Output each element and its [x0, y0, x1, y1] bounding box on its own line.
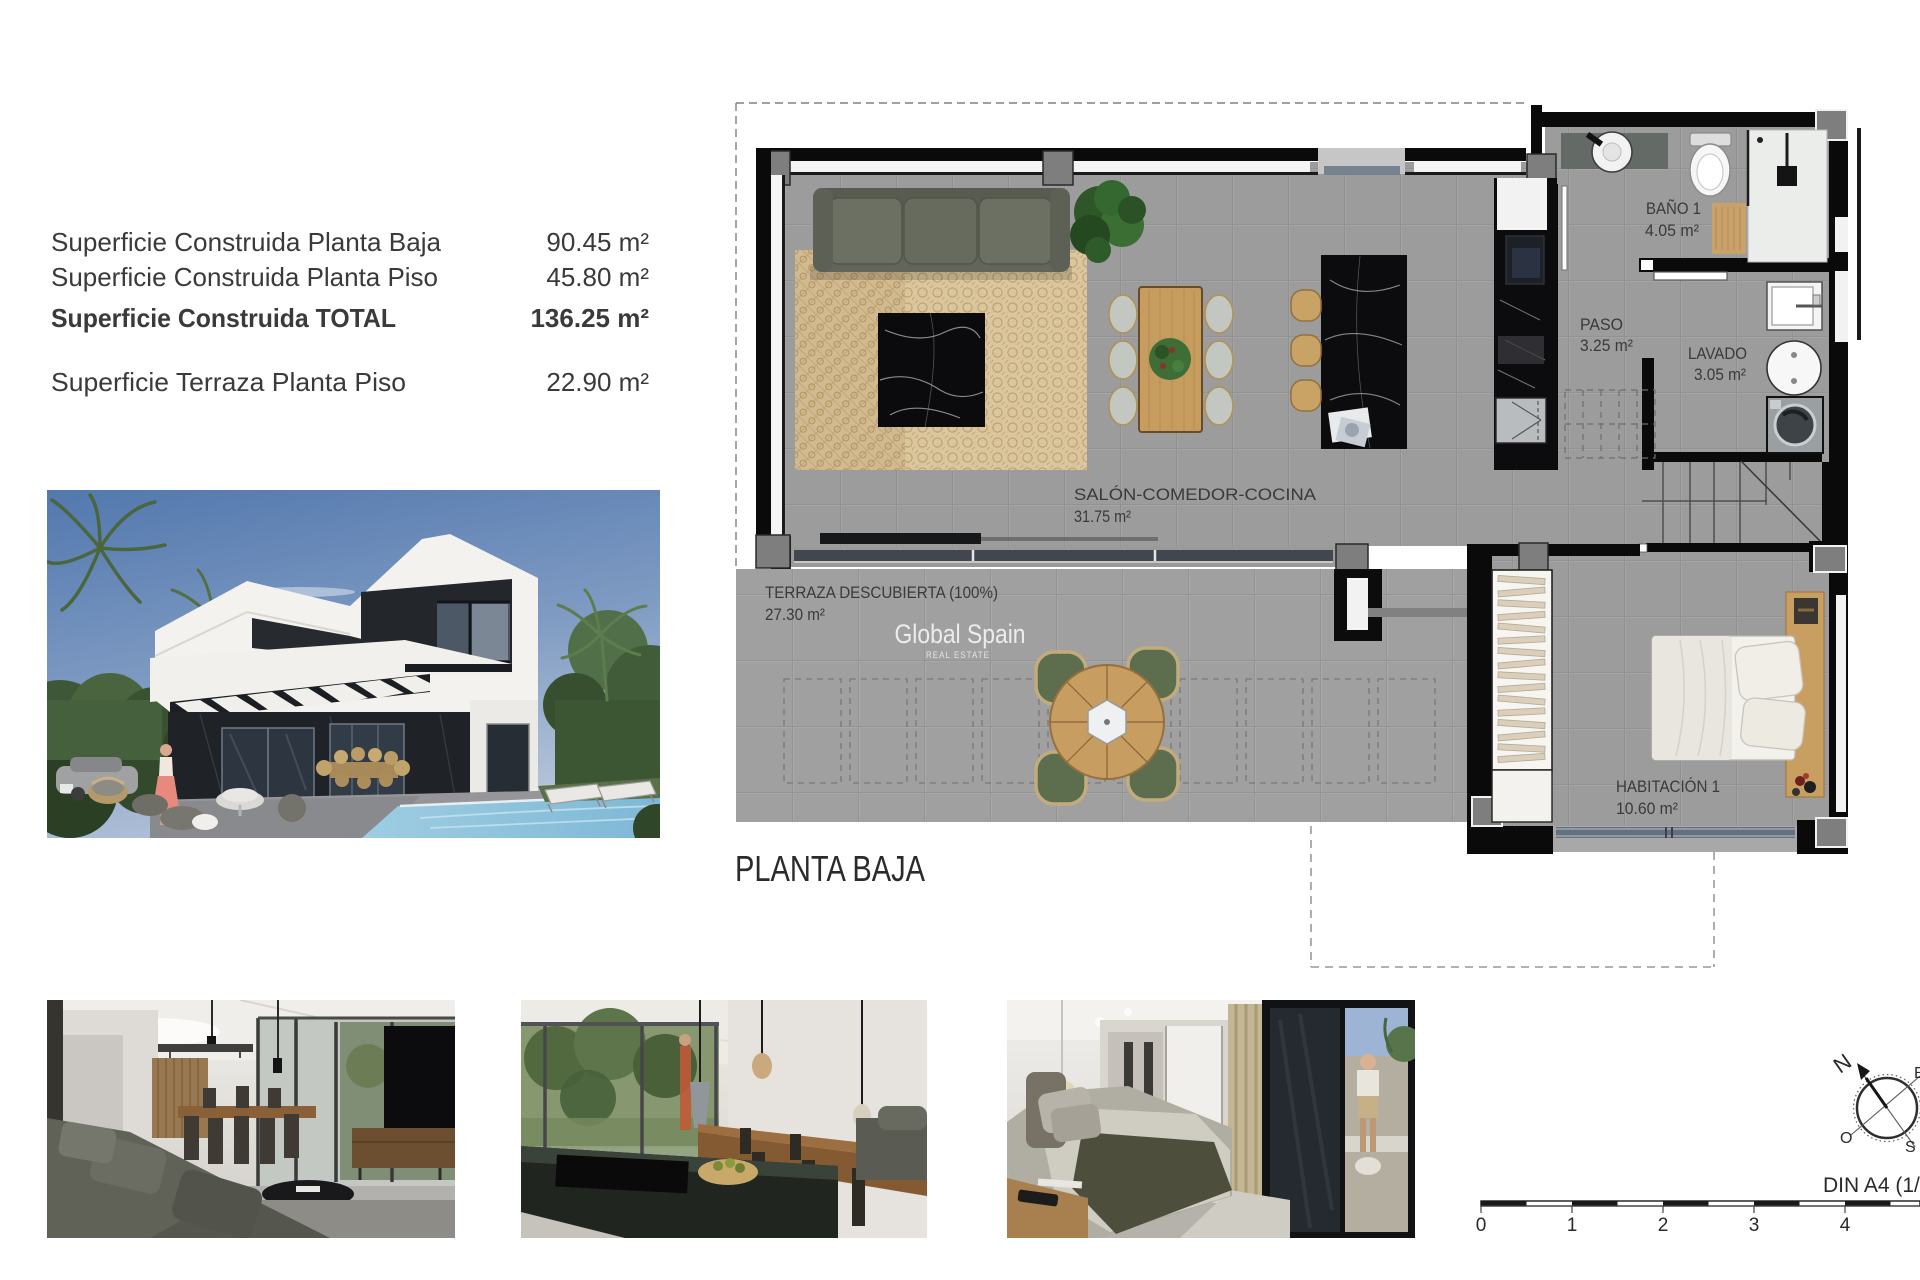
svg-text:22.90 m²: 22.90 m² — [546, 367, 649, 397]
svg-text:PASO: PASO — [1580, 316, 1623, 334]
svg-text:O: O — [1840, 1130, 1852, 1147]
svg-text:0: 0 — [1476, 1215, 1487, 1236]
svg-text:Global Spain: Global Spain — [895, 619, 1026, 649]
svg-text:Superficie Construida Planta P: Superficie Construida Planta Piso — [51, 262, 438, 292]
svg-text:136.25 m²: 136.25 m² — [530, 303, 649, 333]
svg-text:LAVADO: LAVADO — [1688, 345, 1747, 363]
svg-text:Superficie Construida TOTAL: Superficie Construida TOTAL — [51, 303, 396, 333]
svg-text:45.80 m²: 45.80 m² — [546, 262, 649, 292]
svg-text:PLANTA BAJA: PLANTA BAJA — [735, 848, 925, 889]
svg-text:31.75 m²: 31.75 m² — [1074, 508, 1131, 526]
svg-text:27.30 m²: 27.30 m² — [765, 606, 825, 624]
svg-text:HABITACIÓN 1: HABITACIÓN 1 — [1616, 777, 1720, 796]
svg-text:DIN A4 (1/7: DIN A4 (1/7 — [1823, 1174, 1920, 1197]
svg-text:1: 1 — [1567, 1215, 1578, 1236]
svg-text:SALÓN-COMEDOR-COCINA: SALÓN-COMEDOR-COCINA — [1074, 485, 1316, 504]
svg-text:4: 4 — [1840, 1215, 1851, 1236]
svg-text:4.05 m²: 4.05 m² — [1645, 222, 1699, 240]
svg-text:3.05 m²: 3.05 m² — [1694, 366, 1746, 384]
svg-text:BAÑO 1: BAÑO 1 — [1646, 198, 1701, 218]
svg-text:2: 2 — [1658, 1215, 1669, 1236]
svg-text:S: S — [1905, 1139, 1916, 1156]
svg-text:Superficie Construida Planta B: Superficie Construida Planta Baja — [51, 227, 442, 257]
svg-text:90.45 m²: 90.45 m² — [546, 227, 649, 257]
svg-text:Superficie Terraza Planta Piso: Superficie Terraza Planta Piso — [51, 367, 406, 397]
svg-text:E: E — [1914, 1065, 1920, 1082]
svg-text:3: 3 — [1749, 1215, 1760, 1236]
svg-text:10.60 m²: 10.60 m² — [1616, 800, 1678, 818]
svg-text:TERRAZA DESCUBIERTA (100%): TERRAZA DESCUBIERTA (100%) — [765, 584, 998, 602]
svg-text:3.25 m²: 3.25 m² — [1580, 337, 1633, 355]
svg-text:REAL ESTATE: REAL ESTATE — [926, 650, 990, 660]
